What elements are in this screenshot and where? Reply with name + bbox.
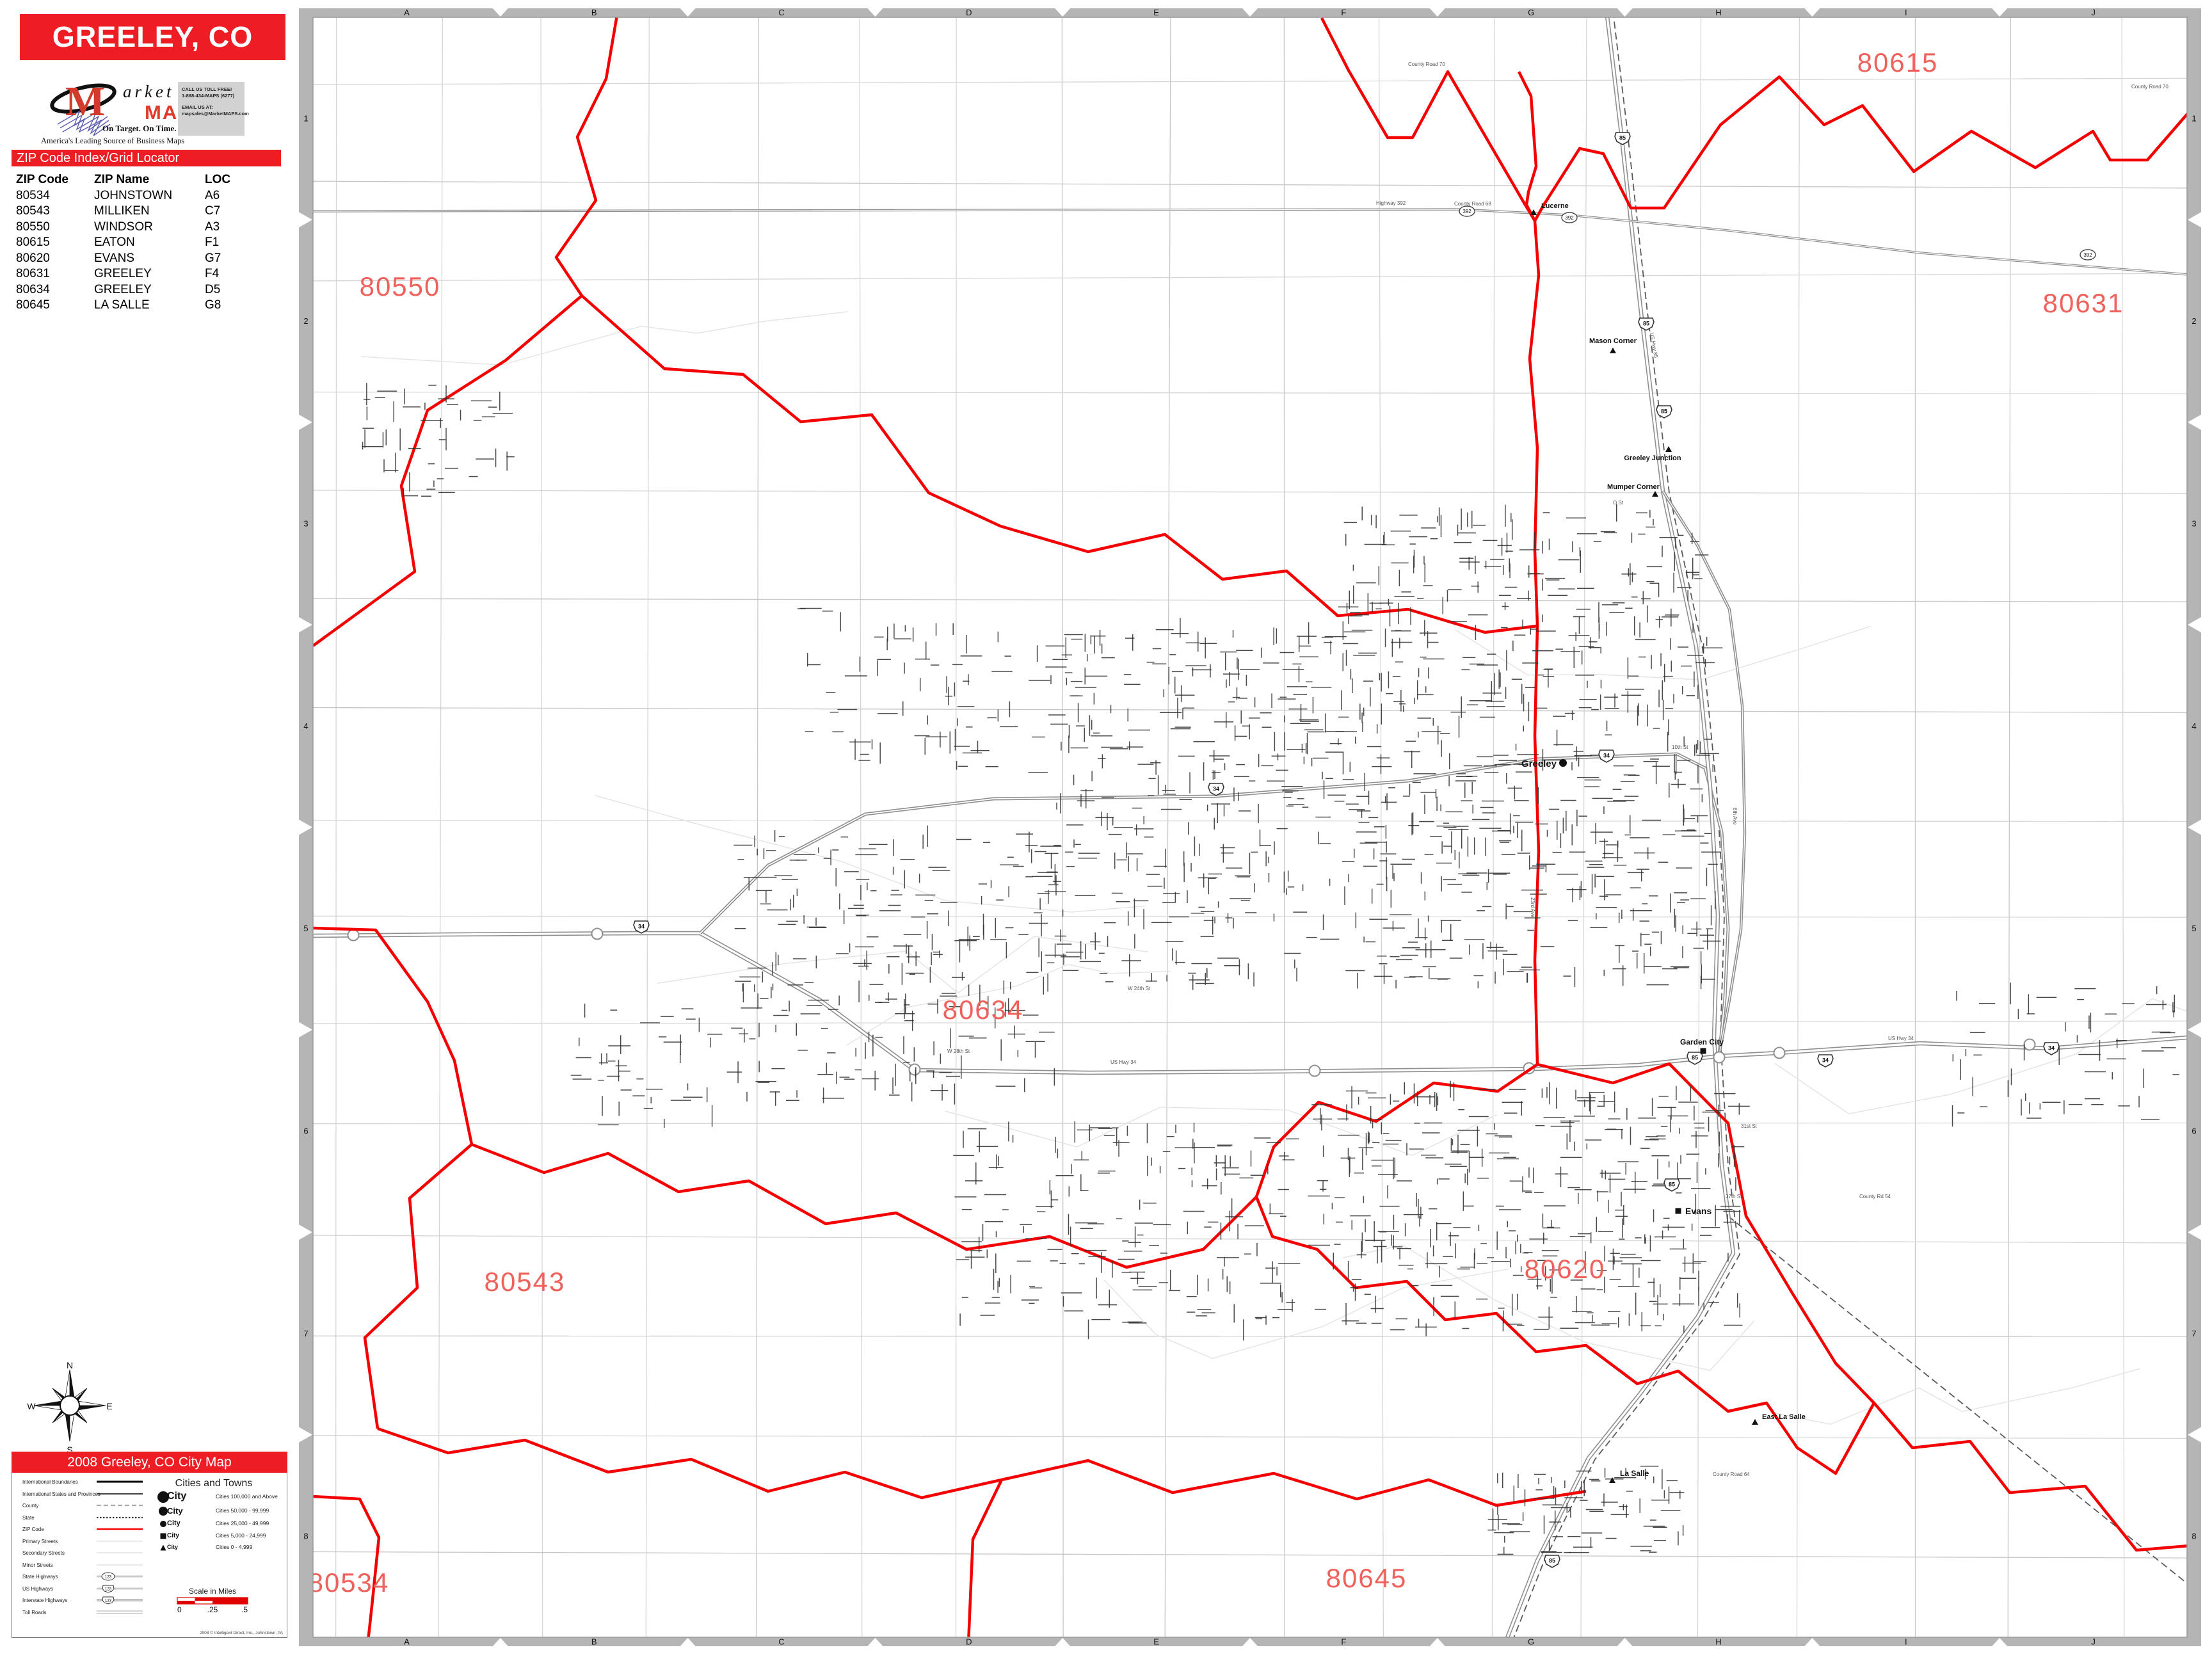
col-zip-name: ZIP Name — [94, 172, 205, 188]
city-class-label: City — [167, 1506, 183, 1516]
zip-code-cell: 80550 — [12, 220, 94, 236]
svg-text:85: 85 — [1661, 408, 1667, 415]
zip-code-cell: 80620 — [12, 251, 94, 267]
grid-letter-top: C — [778, 8, 784, 17]
scale-tick: 0 — [177, 1605, 182, 1614]
town-marker-square — [1676, 1208, 1681, 1214]
grid-number-right: 3 — [2192, 518, 2196, 528]
legend-item-swatch: 123 — [94, 1596, 145, 1608]
legend-item-label: ZIP Code — [22, 1527, 44, 1532]
city-class-description: Cities 100,000 and Above — [216, 1493, 278, 1500]
zip-name-cell: GREELEY — [94, 266, 205, 282]
loc-cell: G7 — [205, 251, 243, 267]
city-class-label: City — [167, 1491, 186, 1502]
svg-text:123: 123 — [105, 1587, 112, 1591]
city-class-description: Cities 5,000 - 24,999 — [216, 1532, 266, 1539]
state-route-oval: 392 — [1562, 212, 1577, 223]
legend-item-swatch — [94, 1608, 145, 1620]
grid-letter-bottom: C — [778, 1637, 784, 1647]
town-label: Garden City — [1680, 1038, 1724, 1046]
zip-code-label: 80631 — [2043, 288, 2124, 318]
street-label: Highway 392 — [1376, 200, 1406, 206]
legend-item-label: International States and Provinces — [22, 1491, 100, 1497]
city-class-description: Cities 25,000 - 49,999 — [216, 1520, 269, 1527]
street-label: W 28th St — [947, 1048, 970, 1054]
scale-bar: Scale in Miles 0.25.5 — [164, 1587, 260, 1618]
svg-text:392: 392 — [2083, 252, 2092, 258]
town-marker-dot — [1559, 759, 1567, 767]
zip-code-cell: 80543 — [12, 204, 94, 220]
grid-letter-bottom: H — [1715, 1637, 1721, 1647]
legend: 2008 Greeley, CO City Map Cities and Tow… — [12, 1452, 287, 1639]
grid-number-right: 8 — [2192, 1531, 2196, 1541]
grid-number-right: 7 — [2192, 1329, 2196, 1338]
zip-index-table: ZIP Code ZIP Name LOC 80534JOHNSTOWNA680… — [12, 172, 281, 314]
legend-item-swatch: 123 — [94, 1584, 145, 1596]
zip-name-cell: WINDSOR — [94, 220, 205, 236]
map-title: GREELEY, CO — [20, 14, 285, 60]
svg-text:85: 85 — [1549, 1558, 1555, 1564]
zip-name-cell: EATON — [94, 235, 205, 251]
zip-code-index: ZIP Code Index/Grid Locator ZIP Code ZIP… — [12, 150, 281, 314]
grid-letter-bottom: J — [2091, 1637, 2096, 1647]
zip-table-row: 80550WINDSORA3 — [12, 220, 281, 236]
legend-item-label: Toll Roads — [22, 1610, 46, 1615]
legend-item-swatch — [94, 1489, 145, 1502]
city-class-description: Cities 0 - 4,999 — [216, 1544, 252, 1550]
zip-table-row: 80543MILLIKENC7 — [12, 204, 281, 220]
col-loc: LOC — [205, 172, 243, 188]
copyright-line: 2008 © Intelligent Direct, Inc., Johnsto… — [200, 1631, 283, 1635]
grid-letter-top: F — [1341, 8, 1346, 17]
grid-letter-top: B — [591, 8, 597, 17]
col-zip-code: ZIP Code — [12, 172, 94, 188]
state-route-oval: 392 — [1459, 206, 1475, 216]
zip-index-header: ZIP Code Index/Grid Locator — [12, 150, 281, 166]
scale-tick: .5 — [241, 1605, 248, 1614]
state-route-oval: 392 — [2080, 250, 2096, 260]
grid-number-right: 1 — [2192, 114, 2196, 124]
legend-item-label: County — [22, 1503, 38, 1509]
zip-code-cell: 80615 — [12, 235, 94, 251]
street-label: US Hwy 34 — [1888, 1036, 1914, 1041]
town-label: Mason Corner — [1589, 337, 1637, 345]
grid-letter-top: G — [1528, 8, 1534, 17]
zip-table-row: 80634GREELEYD5 — [12, 282, 281, 298]
grid-number-left: 8 — [303, 1531, 308, 1541]
grid-letter-top: A — [404, 8, 410, 17]
scale-tick: .25 — [207, 1605, 218, 1614]
zip-code-label: 80534 — [309, 1567, 390, 1598]
zip-code-cell: 80645 — [12, 298, 94, 314]
loc-cell: A6 — [205, 188, 243, 204]
street-label: O St — [1613, 500, 1624, 506]
street-label: W 24th St — [1128, 986, 1151, 991]
svg-text:85: 85 — [1619, 135, 1626, 141]
svg-text:34: 34 — [638, 924, 645, 930]
town-label: Greeley — [1521, 758, 1557, 769]
grid-number-left: 4 — [303, 721, 308, 731]
grid-letter-top: I — [1905, 8, 1907, 17]
town-label: East La Salle — [1762, 1413, 1806, 1421]
town-label: La Salle — [1620, 1469, 1649, 1478]
street-label: County Road 70 — [1408, 61, 1445, 67]
grid-letter-bottom: F — [1341, 1637, 1346, 1647]
zip-code-label: 80543 — [485, 1267, 566, 1297]
grid-letter-top: H — [1715, 8, 1721, 17]
svg-text:123: 123 — [105, 1576, 112, 1580]
legend-item-label: International Boundaries — [22, 1479, 78, 1485]
contact-line: mapsales@MarketMAPS.com — [182, 111, 241, 117]
legend-item-swatch — [94, 1537, 145, 1549]
street-label: 23rd Ave — [1530, 897, 1535, 918]
scale-title: Scale in Miles — [164, 1587, 260, 1596]
legend-item-label: Primary Streets — [22, 1539, 58, 1544]
zip-code-label: 80620 — [1525, 1254, 1606, 1284]
legend-item-label: Minor Streets — [22, 1562, 53, 1568]
svg-text:34: 34 — [2048, 1045, 2055, 1052]
legend-item-swatch — [94, 1548, 145, 1560]
legend-body: Cities and Towns Scale in Miles 0.25.5 2… — [12, 1473, 287, 1638]
zip-name-cell: MILLIKEN — [94, 204, 205, 220]
svg-text:85: 85 — [1692, 1055, 1698, 1061]
grid-number-left: 3 — [303, 518, 308, 528]
city-class-label: City — [167, 1519, 180, 1527]
street-label: 31st St — [1741, 1123, 1758, 1129]
zip-table-row: 80615EATONF1 — [12, 235, 281, 251]
town-label: Lucerne — [1541, 202, 1569, 210]
legend-item-swatch — [94, 1501, 145, 1513]
legend-item-swatch — [94, 1513, 145, 1525]
street-label: US Hwy 34 — [1110, 1059, 1137, 1065]
grid-letter-bottom: A — [404, 1637, 410, 1647]
town-label: Mumper Corner — [1607, 483, 1660, 491]
cities-and-towns-title: Cities and Towns — [150, 1478, 278, 1489]
svg-text:85: 85 — [1643, 321, 1649, 327]
street-label: 10th St — [1672, 744, 1688, 750]
logo-word: arket — [123, 82, 174, 102]
contact-box: CALL US TOLL FREE! 1-888-434-MAPS (6277)… — [178, 82, 244, 136]
street-label: County Road 70 — [2131, 84, 2168, 90]
contact-line: 1-888-434-MAPS (6277) — [182, 93, 241, 99]
zip-code-label: 80550 — [360, 271, 441, 301]
grid-letter-top: D — [966, 8, 972, 17]
city-map: County Road 70County Road 70Highway 392C… — [0, 0, 2212, 1659]
grid-letter-top: J — [2091, 8, 2096, 17]
legend-item-label: Interstate Highways — [22, 1598, 67, 1603]
loc-cell: C7 — [205, 204, 243, 220]
street-label: County Road 68 — [1454, 201, 1491, 207]
legend-item-swatch — [94, 1525, 145, 1537]
zip-name-cell: JOHNSTOWN — [94, 188, 205, 204]
grid-number-left: 2 — [303, 316, 308, 326]
logo-tagline: On Target. On Time. — [102, 124, 176, 134]
svg-text:392: 392 — [1565, 215, 1574, 221]
zip-table-row: 80631GREELEYF4 — [12, 266, 281, 282]
grid-number-right: 6 — [2192, 1126, 2196, 1136]
zip-name-cell: EVANS — [94, 251, 205, 267]
zip-code-label: 80615 — [1857, 47, 1939, 77]
city-class-label: City — [167, 1532, 179, 1539]
legend-title: 2008 Greeley, CO City Map — [12, 1452, 287, 1473]
zip-table-header-row: ZIP Code ZIP Name LOC — [12, 172, 281, 188]
contact-line: CALL US TOLL FREE! — [182, 86, 241, 93]
svg-text:34: 34 — [1213, 786, 1219, 792]
marketmaps-logo: M arket MAPS On Target. On Time. America… — [36, 74, 307, 152]
svg-text:85: 85 — [1669, 1182, 1675, 1188]
street-label: County Rd 54 — [1859, 1194, 1891, 1199]
legend-item-label: State — [22, 1515, 35, 1521]
city-class-description: Cities 50,000 - 99,999 — [216, 1507, 269, 1514]
logo-subline: America's Leading Source of Business Map… — [41, 136, 184, 146]
grid-number-left: 7 — [303, 1329, 308, 1338]
grid-letter-bottom: D — [966, 1637, 972, 1647]
zip-name-cell: GREELEY — [94, 282, 205, 298]
svg-text:123: 123 — [105, 1599, 112, 1603]
street-label: 37th St — [1726, 1194, 1742, 1199]
zip-table-row: 80620EVANSG7 — [12, 251, 281, 267]
street-label: County Road 64 — [1713, 1471, 1750, 1477]
grid-letter-bottom: B — [591, 1637, 597, 1647]
grid-number-right: 4 — [2192, 721, 2196, 731]
compass-label: N — [67, 1360, 73, 1370]
compass-label: S — [67, 1445, 72, 1452]
compass-label: E — [106, 1401, 112, 1411]
loc-cell: F4 — [205, 266, 243, 282]
zip-code-cell: 80634 — [12, 282, 94, 298]
legend-item-label: US Highways — [22, 1586, 53, 1592]
zip-table-row: 80645LA SALLEG8 — [12, 298, 281, 314]
grid-number-right: 5 — [2192, 924, 2196, 933]
loc-cell: A3 — [205, 220, 243, 236]
grid-letter-bottom: G — [1528, 1637, 1534, 1647]
grid-letter-top: E — [1153, 8, 1159, 17]
town-marker-square — [1701, 1048, 1706, 1054]
city-class-label: City — [167, 1544, 178, 1550]
legend-item-swatch — [94, 1560, 145, 1573]
street-label: 8th Ave — [1732, 808, 1738, 825]
zip-code-label: 80645 — [1326, 1563, 1407, 1593]
loc-cell: D5 — [205, 282, 243, 298]
loc-cell: F1 — [205, 235, 243, 251]
svg-text:M: M — [65, 78, 105, 125]
legend-item-swatch — [94, 1477, 145, 1489]
zip-code-cell: 80534 — [12, 188, 94, 204]
grid-letter-bottom: I — [1905, 1637, 1907, 1647]
loc-cell: G8 — [205, 298, 243, 314]
svg-text:34: 34 — [1603, 753, 1610, 759]
zip-name-cell: LA SALLE — [94, 298, 205, 314]
grid-number-left: 5 — [303, 924, 308, 933]
legend-item-label: State Highways — [22, 1574, 58, 1580]
grid-number-right: 2 — [2192, 316, 2196, 326]
grid-number-left: 6 — [303, 1126, 308, 1136]
grid-letter-bottom: E — [1153, 1637, 1159, 1647]
svg-text:392: 392 — [1463, 209, 1471, 214]
zip-table-row: 80534JOHNSTOWNA6 — [12, 188, 281, 204]
town-label: Greeley Junction — [1624, 454, 1681, 462]
compass-rose: NESW — [28, 1359, 112, 1452]
zip-code-cell: 80631 — [12, 266, 94, 282]
legend-item-label: Secondary Streets — [22, 1550, 65, 1556]
compass-label: W — [28, 1401, 36, 1411]
legend-item-swatch: 123 — [94, 1572, 145, 1584]
town-label: Evans — [1685, 1206, 1711, 1216]
zip-code-label: 80634 — [943, 995, 1024, 1025]
scale-graphic: 0.25.5 — [164, 1596, 260, 1615]
contact-line: EMAIL US AT: — [182, 104, 241, 111]
svg-text:34: 34 — [1822, 1057, 1829, 1064]
map-title-text: GREELEY, CO — [52, 20, 253, 54]
